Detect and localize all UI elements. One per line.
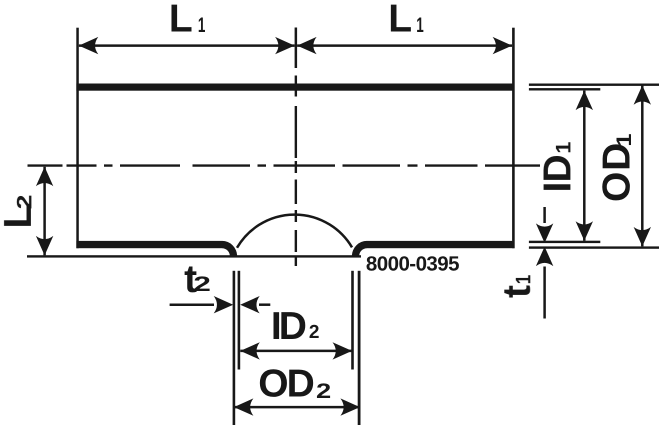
svg-text:OD1: OD1 <box>596 133 639 202</box>
svg-text:8000-0395: 8000-0395 <box>366 253 459 276</box>
